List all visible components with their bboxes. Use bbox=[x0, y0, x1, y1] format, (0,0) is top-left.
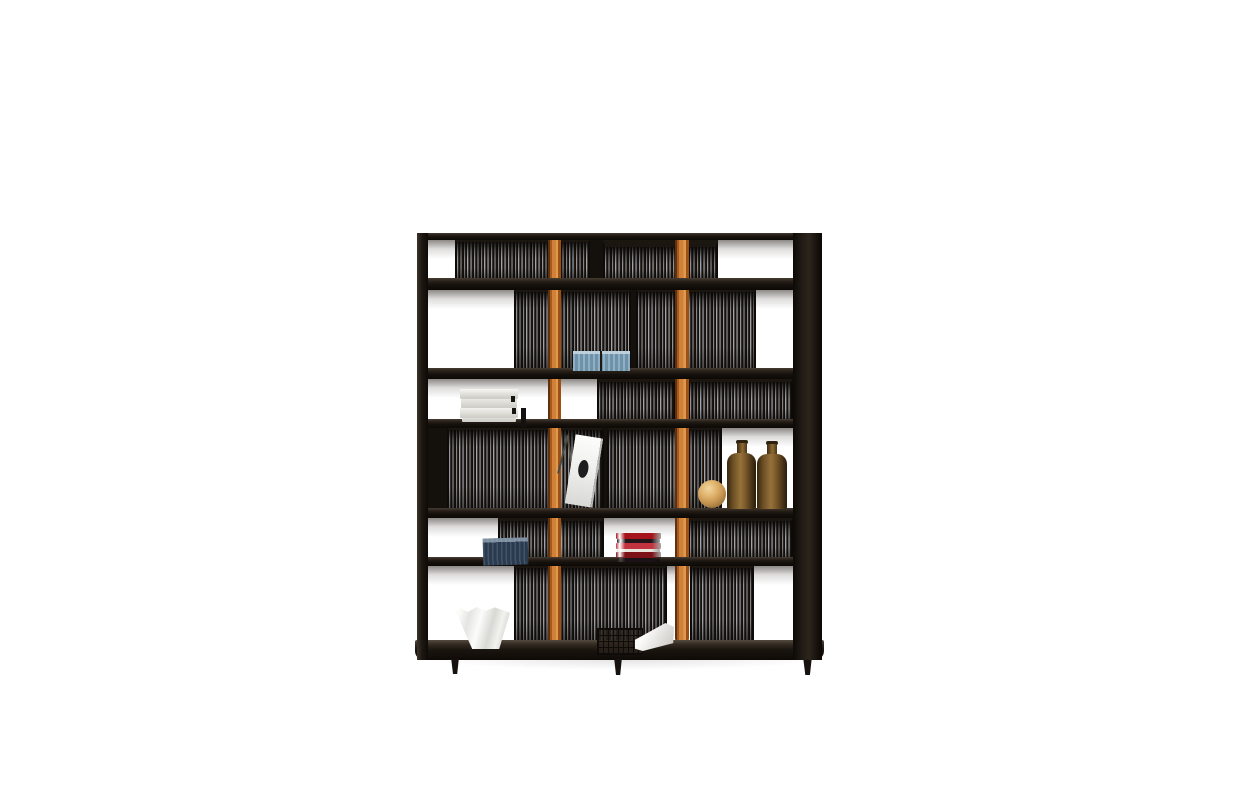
white-book-layer bbox=[460, 408, 518, 418]
slat-panel bbox=[688, 379, 793, 419]
leather-strap-right bbox=[675, 236, 689, 640]
slat-panel bbox=[688, 518, 793, 557]
product-photo-bookshelf bbox=[0, 0, 1235, 800]
white-book-layer bbox=[460, 389, 518, 399]
slat-panel bbox=[597, 379, 676, 419]
amber-bottle-1 bbox=[727, 440, 756, 509]
red-books bbox=[616, 533, 661, 562]
black-bookend bbox=[521, 408, 526, 427]
magazine-logo bbox=[577, 459, 590, 478]
open-cell bbox=[756, 290, 793, 368]
open-cell bbox=[754, 566, 793, 640]
slat-panel bbox=[690, 566, 754, 640]
panel-gap bbox=[590, 240, 603, 278]
left-post bbox=[417, 233, 428, 660]
right-post bbox=[793, 233, 822, 660]
book-clip bbox=[512, 408, 516, 414]
white-book-layer bbox=[462, 418, 516, 422]
blue-books bbox=[573, 351, 630, 371]
magazine-cover bbox=[565, 434, 604, 508]
open-cell bbox=[428, 290, 514, 368]
open-cell bbox=[428, 240, 455, 278]
bottle-body bbox=[727, 453, 756, 509]
leaning-magazine bbox=[556, 434, 602, 506]
bottle-body bbox=[757, 454, 787, 509]
shelf-board-1 bbox=[417, 278, 822, 290]
slat-panel bbox=[455, 240, 590, 278]
panel-gap bbox=[631, 290, 636, 368]
wooden-sphere bbox=[698, 480, 726, 508]
shelf-board-4 bbox=[417, 508, 822, 518]
slat-panel bbox=[636, 290, 756, 368]
slat-panel bbox=[603, 240, 718, 278]
amber-bottle-2 bbox=[757, 441, 787, 509]
white-book-layer bbox=[461, 399, 517, 408]
slat-panel bbox=[514, 566, 667, 640]
red-book-layer bbox=[617, 558, 660, 562]
open-cell bbox=[718, 240, 793, 278]
white-books bbox=[460, 389, 518, 422]
navy-books bbox=[483, 537, 529, 565]
book-clip bbox=[511, 396, 515, 402]
panel-gap bbox=[604, 428, 607, 508]
top-board bbox=[417, 233, 822, 240]
panel-gap bbox=[428, 428, 447, 508]
